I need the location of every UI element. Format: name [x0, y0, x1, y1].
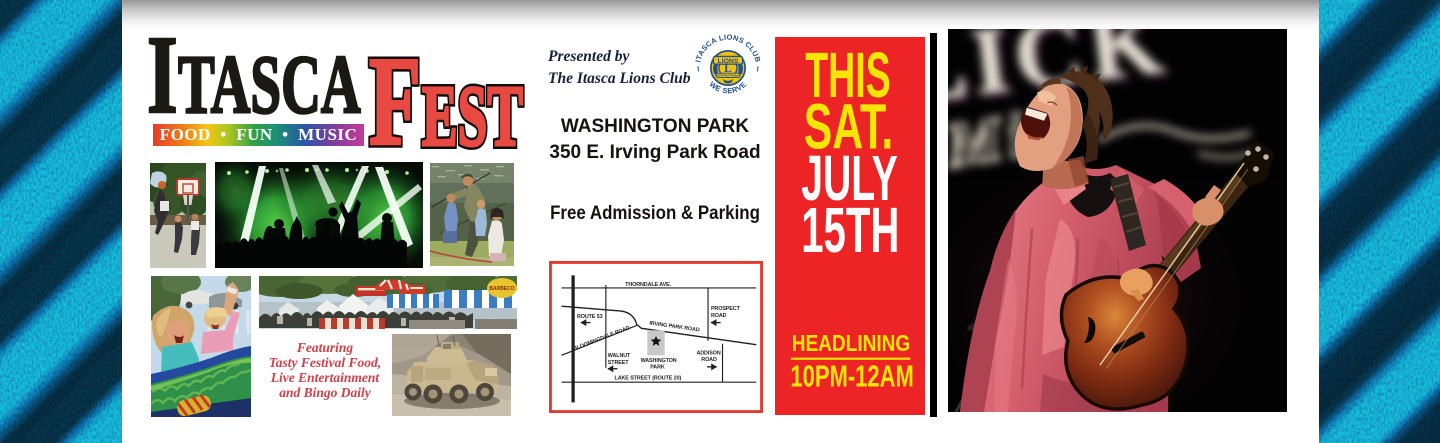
svg-text:STREET: STREET	[608, 360, 629, 366]
svg-text:EST: EST	[422, 68, 523, 155]
svg-text:TASCA: TASCA	[178, 39, 361, 131]
svg-text:PARK: PARK	[650, 365, 665, 371]
svg-text:HEADLINING: HEADLINING	[792, 331, 911, 356]
svg-text:PROSPECT: PROSPECT	[711, 306, 741, 312]
svg-text:ROAD: ROAD	[701, 357, 717, 363]
svg-text:INTERNATIONAL: INTERNATIONAL	[716, 74, 741, 78]
svg-text:10PM-12AM: 10PM-12AM	[790, 359, 913, 393]
svg-text:ROUTE 53: ROUTE 53	[577, 314, 603, 320]
svg-text:15TH: 15TH	[801, 196, 899, 267]
svg-text:WALNUT: WALNUT	[608, 353, 631, 359]
svg-text:THORNDALE AVE.: THORNDALE AVE.	[625, 282, 671, 288]
svg-text:ADDISON: ADDISON	[696, 350, 720, 356]
svg-text:ROAD: ROAD	[711, 313, 727, 319]
svg-text:LAKE STREET (ROUTE 20): LAKE STREET (ROUTE 20)	[615, 375, 682, 381]
svg-text:BARBECO: BARBECO	[489, 286, 514, 292]
svg-text:WASHINGTON: WASHINGTON	[641, 358, 677, 364]
svg-text:F: F	[369, 32, 421, 155]
svg-text:I: I	[147, 30, 178, 136]
